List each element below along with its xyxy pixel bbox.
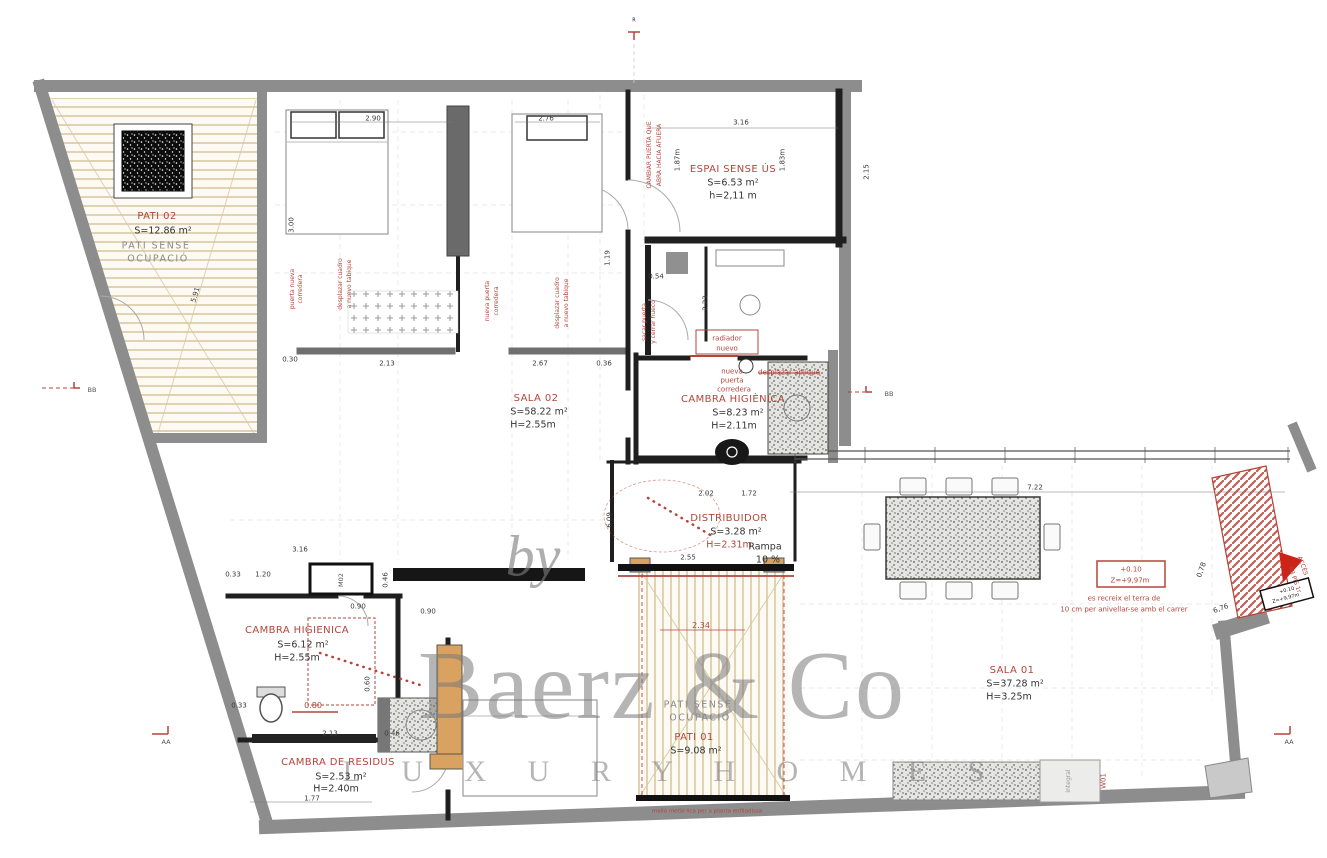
room-height: H=2.55m (274, 653, 320, 663)
dim: 1.19 (605, 250, 612, 266)
ref-mark: R (632, 19, 635, 24)
dim: 1.72 (741, 491, 757, 498)
note-move-panel: desplazar cuadro (555, 277, 561, 329)
section-mark-bb: BB (88, 387, 97, 394)
room-area: S=8.23 m² (712, 408, 763, 418)
dim: 3.00 (289, 217, 296, 233)
note-change-door: CAMBIAR PUERTA QUE (647, 121, 653, 188)
dim: 2.13 (322, 731, 338, 738)
dim-red: 2.34 (692, 622, 710, 630)
dim: 2.55 (680, 555, 696, 562)
dim: 2.76 (538, 116, 554, 123)
dim: 2.13 (379, 361, 395, 368)
note-radiator: radiador (712, 336, 741, 343)
dim: 2.23 (703, 295, 710, 311)
dim: 0.33 (231, 703, 247, 710)
note-new-door: puerta nueva (290, 269, 296, 309)
level-mark: Z=+9,97m (1111, 578, 1150, 585)
dim: 0.60 (365, 676, 372, 692)
section-mark-aa: AA (161, 739, 170, 746)
room-title-sala-01: SALA 01 (990, 666, 1035, 676)
room-title-espai-sense-us: ESPAI SENSE ÚS (690, 165, 776, 175)
note-remove-door: y cerrar hueco (651, 300, 657, 344)
room-area: S=37.28 m² (986, 679, 1043, 689)
room-note: PATI SENSE (122, 241, 191, 251)
room-area: S=3.28 m² (710, 527, 761, 537)
dim: 0.54 (648, 274, 664, 281)
dim: 0.36 (596, 361, 612, 368)
note-move-panel: a nuevo tabique (347, 260, 353, 309)
room-title-cambra-higienica-2: CAMBRA HIGIENICA (245, 626, 349, 636)
ramp-slope: 10 % (756, 555, 780, 565)
note-floor-raise: 10 cm per anivellar-se amb el carrer (1060, 607, 1187, 614)
level-mark: Z=+9,97m (1272, 593, 1300, 605)
dim: 3.16 (292, 547, 308, 554)
access-label: ACCÉS (1296, 556, 1308, 577)
note-new-door: puerta (720, 378, 743, 385)
room-note: OCUPACIÓ (127, 254, 188, 264)
dim: 0.33 (225, 572, 241, 579)
room-height: H=2.31m (706, 540, 752, 550)
room-title-sala-02: SALA 02 (514, 394, 559, 404)
room-area: S=9.08 m² (670, 746, 721, 756)
note-remove-door: sacar puerta (642, 303, 648, 341)
dim: 0.46 (384, 731, 400, 738)
dim: 0,78 (1196, 561, 1208, 578)
note-change-door: ABRA HACIA AFUERA (657, 124, 663, 186)
room-area: S=6.53 m² (707, 178, 758, 188)
section-mark-bb: BB (885, 391, 894, 398)
note-new-door: corredera (494, 286, 500, 315)
level-mark: +0.10 (1120, 567, 1141, 574)
dim: 6.09 (607, 512, 614, 528)
dim: 2.67 (532, 361, 548, 368)
floor-plan-canvas: by Baerz & Co L U X U R Y H O M E S PATI… (0, 0, 1327, 858)
room-area-pati-02: S=12.86 m² (134, 226, 191, 236)
note-radiator: nuevo (716, 346, 738, 353)
dim: 1.77 (304, 796, 320, 803)
note-mesh: malla metàl·lica per a planta enfiladiss… (652, 809, 762, 815)
room-title-cambra-higienica: CAMBRA HIGIÈNICA (681, 395, 785, 405)
room-height: H=3.25m (986, 692, 1032, 702)
dim: 1.20 (255, 572, 271, 579)
dim: 1.87m (675, 149, 682, 171)
room-height: H=2.55m (510, 420, 556, 430)
dim: 5.91 (190, 287, 201, 304)
code-m02: M02 (338, 573, 345, 587)
room-area: S=2.53 m² (315, 772, 366, 782)
note-move-panel: desplazar cuadro (338, 258, 344, 310)
room-title-pati-02: PATI 02 (137, 212, 176, 222)
dim: 0.90 (420, 609, 436, 616)
plan-text-layer: PATI 02S=12.86 m²PATI SENSEOCUPACIÓESPAI… (0, 0, 1327, 858)
note-new-door: nueva (721, 369, 743, 376)
dim: 2.15 (864, 164, 871, 180)
room-area: S=58.22 m² (510, 407, 567, 417)
room-title-distribuidor: DISTRIBUIDOR (690, 514, 767, 524)
note-move-light: desplazar aplique (758, 370, 820, 377)
code-w01: W01 (1101, 773, 1108, 789)
note-new-door: corredera (298, 274, 304, 303)
dim: 3.16 (733, 120, 749, 127)
dim: 0.46 (383, 572, 390, 588)
room-title-cambra-de-residus: CAMBRA DE RESIDUS (281, 758, 395, 768)
ramp-label: Rampa (748, 542, 781, 552)
section-mark-aa: AA (1284, 739, 1293, 746)
dim: 7.22 (1027, 485, 1043, 492)
note-move-panel: a nuevo tabique (564, 279, 570, 328)
room-height: H=2.11m (711, 421, 757, 431)
dim: 0.90 (350, 604, 366, 611)
note-new-door: corredera (717, 387, 751, 394)
dim: 2.02 (698, 491, 714, 498)
dim-red: 0.80 (304, 702, 322, 710)
dim: 6,76 (1212, 603, 1229, 615)
dim: 0.30 (282, 357, 298, 364)
note-new-door: nueva puerta (485, 281, 491, 321)
note-floor-raise: es recreix el terra de (1088, 596, 1161, 603)
dim: 1.83m (780, 149, 787, 171)
room-title-pati-01: PATI 01 (674, 733, 713, 743)
dim: 2.90 (365, 116, 381, 123)
room-area: S=6.12 m² (277, 640, 328, 650)
room-note: PATI SENSE (664, 700, 733, 710)
code-integral: integral (1066, 769, 1072, 792)
room-height: H=2.40m (313, 784, 359, 794)
room-height: h=2,11 m (709, 191, 756, 201)
room-note: OCUPACIÓ (669, 713, 730, 723)
